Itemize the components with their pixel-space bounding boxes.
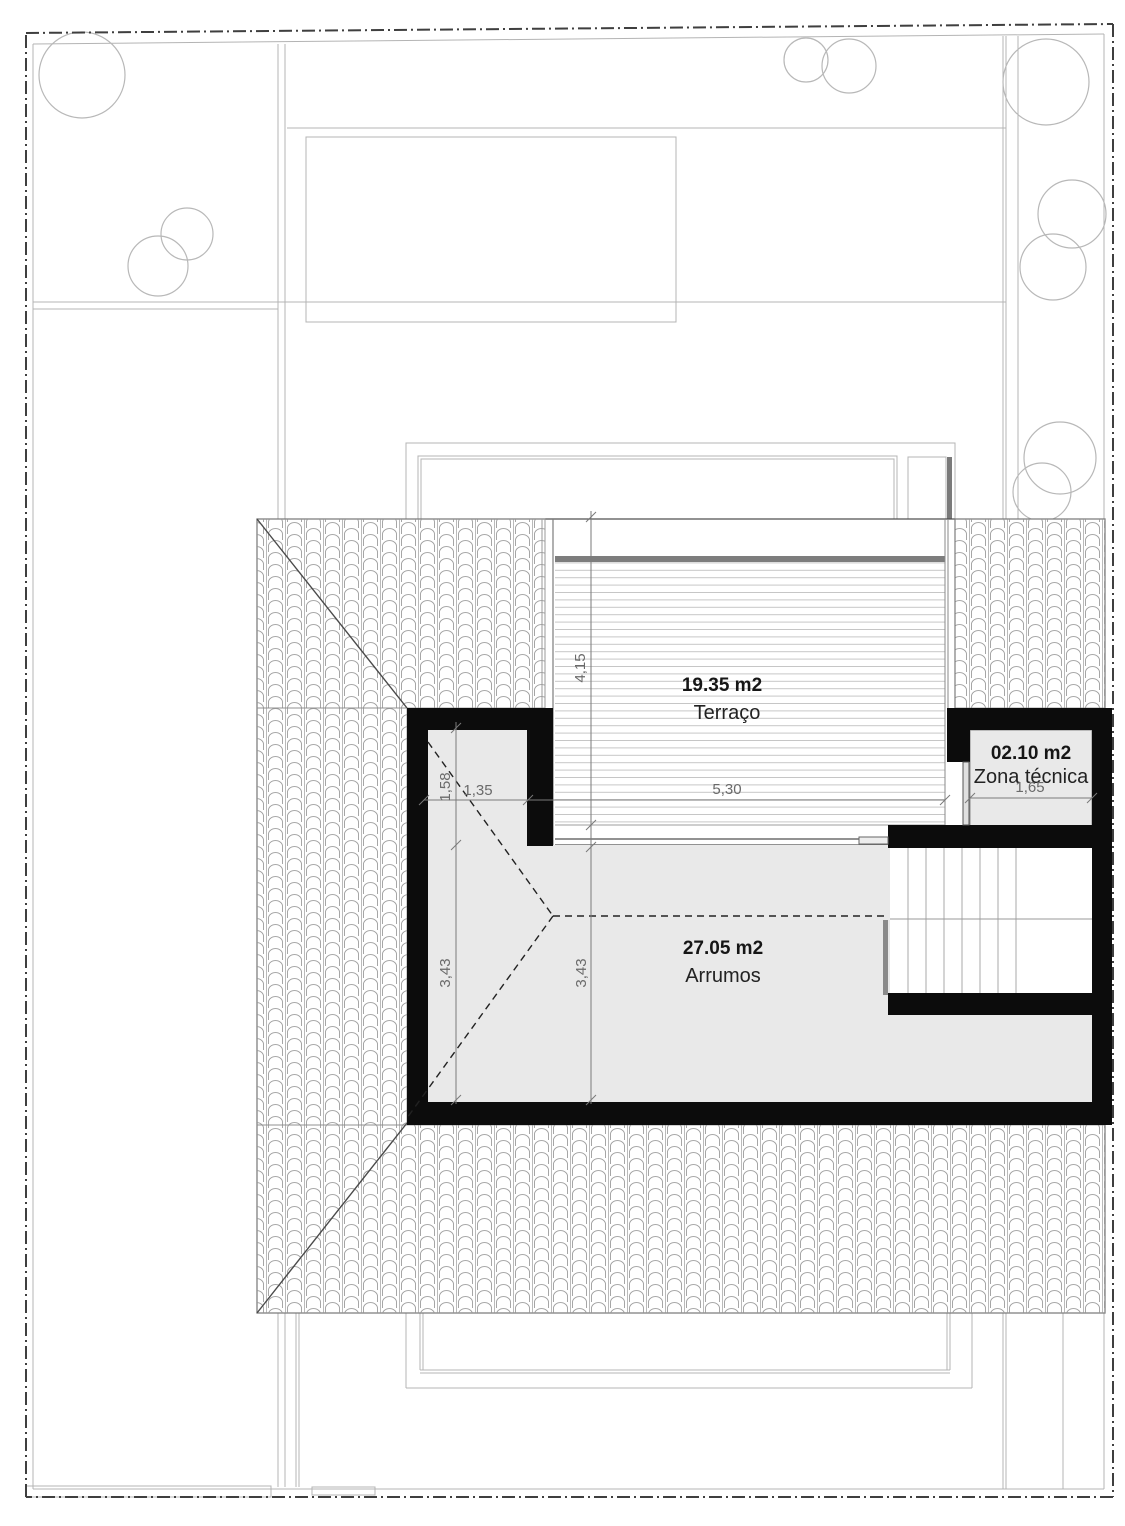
wall-stair-top [888,825,1092,848]
floor-plan-sheet: 19.35 m2 Terraço 27.05 m2 Arrumos 02.10 … [0,0,1125,1526]
window-mullion [947,457,952,519]
wall-right [1092,708,1112,1125]
wall-technical-top [947,708,1112,730]
tree-circle [784,38,828,82]
dim-storage-depth-center: 3,43 [573,958,590,987]
tree-circle [1024,422,1096,494]
wall-bottom [407,1102,1112,1125]
tree-circle [1038,180,1106,248]
storage-name-label: Arrumos [685,965,761,987]
tree-circle [161,208,213,260]
roof-tiles-right [955,519,1105,708]
fence-segment [312,1487,375,1495]
roof-tiles-top-left [257,519,545,708]
storage-floor-under-stairs [890,1015,1092,1102]
fence-top [33,34,1104,44]
dim-storage-depth-left: 3,43 [437,958,454,987]
lower-terrace-outline [306,137,676,322]
tree-circle [1003,39,1089,125]
tree-circle [128,236,188,296]
dim-technical-width: 1,65 [1015,779,1044,796]
deck-top-bar [555,556,945,562]
wall-nook-right [527,730,553,846]
dim-nook-width: 1,35 [463,782,492,799]
storage-area-label: 27.05 m2 [683,938,763,959]
fence-segment [26,1486,271,1497]
stairwell-floor [890,848,1092,993]
wall-technical-left-stub [947,708,970,762]
floor-plan-svg: 19.35 m2 Terraço 27.05 m2 Arrumos 02.10 … [0,0,1125,1526]
tree-circle [1013,463,1071,521]
wall-left [407,708,428,1125]
tree-circle [822,39,876,93]
dim-terrace-depth: 4,15 [572,653,589,682]
roof-tiles-left [257,708,407,1125]
terrace-door-leaf [859,837,888,844]
terrace-name-label: Terraço [694,702,761,724]
wall-top-left [407,708,553,730]
floor-below-outline-top [406,443,955,519]
storage-floor [428,845,890,1102]
roof-tiles-bottom [257,1125,1105,1313]
technical-area-label: 02.10 m2 [991,743,1071,764]
terrace-area-label: 19.35 m2 [682,675,762,696]
tree-circle [39,32,125,118]
tree-circle [1020,234,1086,300]
trees [39,32,1106,521]
stair-handrail [883,920,888,995]
wall-stair-bottom [888,993,1092,1015]
technical-zone-door-leaf [963,762,969,825]
dim-nook-depth: 1,58 [437,772,454,801]
dim-terrace-width: 5,30 [712,781,741,798]
